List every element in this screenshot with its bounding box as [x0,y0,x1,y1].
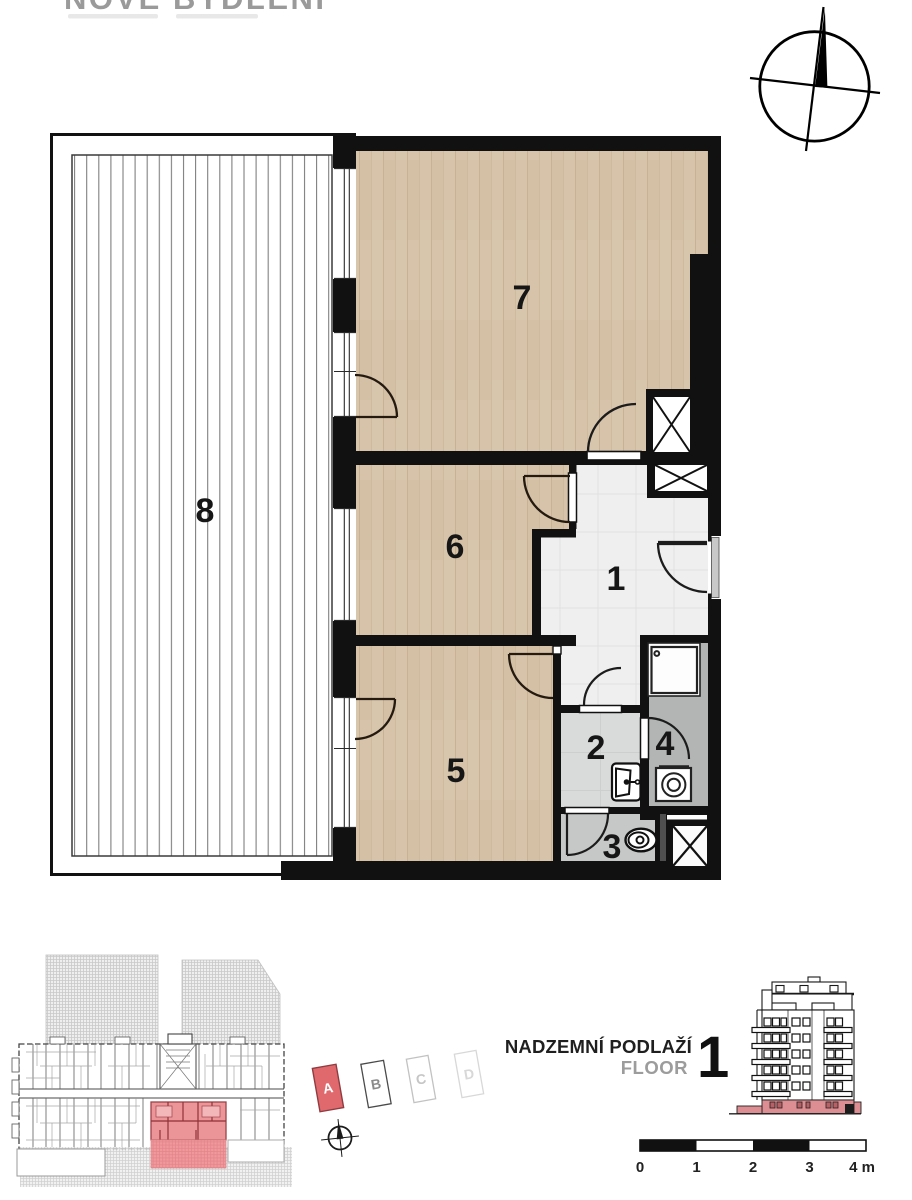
svg-text:2: 2 [587,729,606,767]
svg-text:1: 1 [697,1025,729,1090]
svg-text:1: 1 [692,1159,700,1176]
svg-text:3: 3 [603,828,622,866]
svg-text:3: 3 [805,1159,813,1176]
svg-text:NOVE BYDLENI: NOVE BYDLENI [64,0,327,16]
svg-text:2: 2 [749,1159,757,1176]
svg-text:8: 8 [196,492,215,530]
svg-text:FLOOR: FLOOR [621,1057,688,1078]
svg-text:0: 0 [636,1159,644,1176]
svg-text:1: 1 [607,560,626,598]
svg-text:5: 5 [447,752,466,790]
svg-text:NADZEMNÍ PODLAŽÍ: NADZEMNÍ PODLAŽÍ [505,1036,693,1057]
svg-text:7: 7 [513,279,532,317]
svg-text:4 m: 4 m [849,1159,875,1176]
svg-text:6: 6 [446,528,465,566]
svg-text:4: 4 [656,725,675,763]
